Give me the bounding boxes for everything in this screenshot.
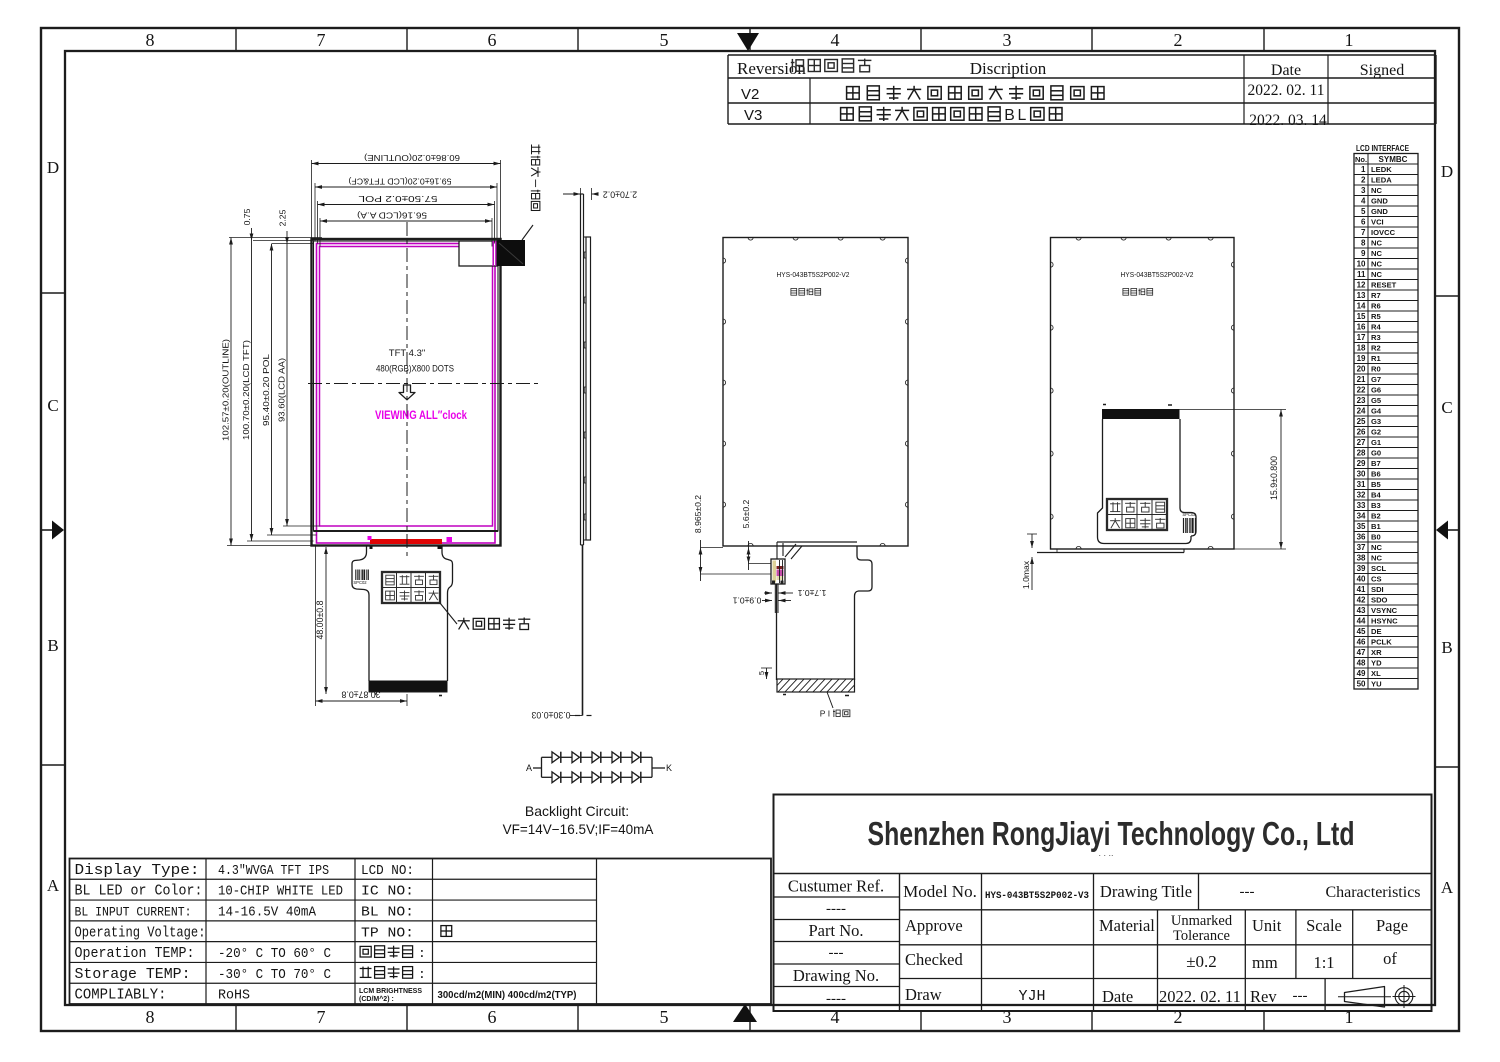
- svg-text:G6: G6: [1371, 385, 1381, 394]
- svg-text:16: 16: [1357, 322, 1366, 331]
- svg-text:NC: NC: [1371, 543, 1382, 552]
- svg-text:. . ..: . . ..: [1098, 848, 1113, 858]
- svg-text:30: 30: [1357, 469, 1366, 478]
- svg-text:of: of: [1383, 949, 1397, 968]
- svg-text:6: 6: [1361, 217, 1366, 226]
- svg-text:3: 3: [1003, 30, 1012, 50]
- svg-text:B1: B1: [1371, 522, 1381, 531]
- svg-text:NC: NC: [1371, 270, 1382, 279]
- svg-text:46: 46: [1357, 637, 1366, 646]
- svg-text:5: 5: [660, 30, 669, 50]
- svg-text:HYS-043BT5S2P002-V2: HYS-043BT5S2P002-V2: [1121, 270, 1194, 279]
- svg-text:6: 6: [488, 30, 497, 50]
- svg-text:30.87±0.8: 30.87±0.8: [341, 690, 380, 700]
- svg-text:(CD/M^2) :: (CD/M^2) :: [359, 995, 394, 1003]
- svg-text:R6: R6: [1371, 301, 1381, 310]
- svg-text:20: 20: [1357, 364, 1366, 373]
- svg-text:15.9±0.800: 15.9±0.800: [1269, 456, 1279, 500]
- svg-text:COMPLIABLY:: COMPLIABLY:: [75, 988, 167, 1004]
- svg-text:9: 9: [1361, 249, 1366, 258]
- svg-text:NC: NC: [1371, 249, 1382, 258]
- svg-text:YD: YD: [1371, 658, 1382, 667]
- svg-text:17: 17: [1357, 333, 1366, 342]
- svg-text:4.3"WVGA TFT IPS: 4.3"WVGA TFT IPS: [218, 863, 329, 879]
- svg-text:B4: B4: [1371, 490, 1381, 499]
- svg-text:14: 14: [1357, 301, 1366, 310]
- svg-text:48: 48: [1357, 658, 1366, 667]
- svg-text:C: C: [47, 396, 58, 415]
- svg-text:1.7±0.1: 1.7±0.1: [797, 588, 826, 598]
- svg-text:G2: G2: [1371, 427, 1381, 436]
- svg-text:B3: B3: [1371, 501, 1381, 510]
- svg-text:2.25: 2.25: [278, 209, 288, 226]
- svg-text:---: ---: [1240, 884, 1255, 900]
- svg-text:59.16±0.20(LCD TFT&CF): 59.16±0.20(LCD TFT&CF): [348, 177, 451, 187]
- svg-text:G7: G7: [1371, 375, 1381, 384]
- svg-text:Operating Voltage:: Operating Voltage:: [75, 925, 206, 941]
- svg-text:SDO: SDO: [1371, 595, 1388, 604]
- svg-text:1:1: 1:1: [1313, 953, 1334, 972]
- svg-text:YJH: YJH: [1018, 988, 1045, 1005]
- svg-text:XR: XR: [1371, 648, 1382, 657]
- svg-text:NC: NC: [1371, 259, 1382, 268]
- svg-text:50: 50: [1357, 679, 1366, 688]
- svg-text:2.70±0.2: 2.70±0.2: [603, 190, 637, 200]
- svg-text:SPC02: SPC02: [353, 580, 367, 585]
- svg-text:----: ----: [826, 901, 846, 917]
- svg-text:LCD NO:: LCD NO:: [361, 864, 414, 879]
- svg-text:0.30±0.03: 0.30±0.03: [531, 710, 570, 720]
- svg-text:35: 35: [1357, 522, 1366, 531]
- svg-text:Storage TEMP:: Storage TEMP:: [75, 967, 191, 983]
- svg-text:49: 49: [1357, 669, 1366, 678]
- svg-text:11: 11: [1357, 270, 1366, 279]
- svg-text:B6: B6: [1371, 469, 1381, 478]
- svg-text:Unit: Unit: [1252, 916, 1282, 935]
- svg-text:G0: G0: [1371, 448, 1381, 457]
- svg-text:L: L: [1017, 107, 1026, 124]
- svg-text:R4: R4: [1371, 322, 1381, 331]
- svg-text:8.965±0.2: 8.965±0.2: [693, 495, 703, 533]
- svg-text:0.75: 0.75: [242, 208, 252, 225]
- svg-text:28: 28: [1357, 448, 1366, 457]
- svg-text:B: B: [1441, 638, 1452, 657]
- svg-text:Part No.: Part No.: [809, 921, 864, 940]
- svg-text:CS: CS: [1371, 574, 1382, 583]
- svg-text:TP NO:: TP NO:: [361, 926, 414, 941]
- svg-text:7: 7: [317, 30, 326, 50]
- svg-text:GND: GND: [1371, 207, 1388, 216]
- svg-text:-30° C TO 70° C: -30° C TO 70° C: [218, 968, 331, 983]
- svg-text:29: 29: [1357, 459, 1366, 468]
- svg-text:D: D: [47, 158, 59, 177]
- svg-text:B2: B2: [1371, 511, 1381, 520]
- svg-text:3: 3: [1361, 186, 1366, 195]
- svg-text:P: P: [820, 708, 826, 718]
- svg-text:1: 1: [1361, 165, 1366, 174]
- svg-text:Tolerance: Tolerance: [1173, 928, 1230, 944]
- svg-text:5: 5: [660, 1007, 669, 1027]
- svg-text:VSYNC: VSYNC: [1371, 606, 1398, 615]
- svg-text:0.9±0.1: 0.9±0.1: [732, 596, 761, 606]
- svg-text:2: 2: [1361, 175, 1366, 184]
- svg-text:44: 44: [1357, 616, 1366, 625]
- svg-text:1.0max: 1.0max: [1021, 560, 1031, 589]
- svg-text:56.16(LCD A.A): 56.16(LCD A.A): [357, 211, 427, 221]
- svg-text:Operation TEMP:: Operation TEMP:: [75, 946, 195, 962]
- svg-text:95.40±0.20 POL: 95.40±0.20 POL: [261, 354, 271, 426]
- svg-text:93.60(LCD AA): 93.60(LCD AA): [277, 358, 287, 422]
- svg-text:Checked: Checked: [905, 950, 963, 969]
- svg-text:41: 41: [1357, 585, 1366, 594]
- svg-text:37: 37: [1357, 543, 1366, 552]
- svg-text:Backlight Circuit:: Backlight Circuit:: [525, 803, 629, 819]
- svg-text:B: B: [1004, 107, 1015, 124]
- svg-text:23: 23: [1357, 396, 1366, 405]
- svg-text:RESET: RESET: [1371, 280, 1397, 289]
- svg-text:-20° C TO 60° C: -20° C TO 60° C: [218, 947, 331, 962]
- svg-text:XL: XL: [1371, 669, 1381, 678]
- svg-text:7: 7: [317, 1007, 326, 1027]
- svg-text:32: 32: [1357, 490, 1366, 499]
- svg-text:V2: V2: [741, 86, 759, 103]
- svg-text:B7: B7: [1371, 459, 1381, 468]
- svg-text:±0.2: ±0.2: [1186, 952, 1217, 971]
- svg-text:A: A: [526, 763, 532, 773]
- svg-text:NC: NC: [1371, 553, 1382, 562]
- svg-text:R2: R2: [1371, 343, 1381, 352]
- svg-text:10: 10: [1357, 259, 1366, 268]
- svg-text:IOVCC: IOVCC: [1371, 228, 1396, 237]
- svg-text:C: C: [1441, 398, 1452, 417]
- svg-text:13: 13: [1357, 291, 1366, 300]
- svg-text:R1: R1: [1371, 354, 1381, 363]
- svg-text:G3: G3: [1371, 417, 1381, 426]
- svg-text:Approve: Approve: [905, 916, 963, 935]
- svg-text:Drawing Title: Drawing Title: [1100, 882, 1192, 901]
- svg-text:26: 26: [1357, 427, 1366, 436]
- svg-text:47: 47: [1357, 648, 1366, 657]
- svg-text:R7: R7: [1371, 291, 1381, 300]
- svg-text:G5: G5: [1371, 396, 1382, 405]
- svg-text:2022. 03. 14: 2022. 03. 14: [1249, 112, 1327, 129]
- svg-text:6: 6: [488, 1007, 497, 1027]
- svg-text:B5: B5: [1371, 480, 1381, 489]
- svg-text:10-CHIP WHITE LED: 10-CHIP WHITE LED: [218, 885, 343, 900]
- svg-text:4: 4: [1361, 196, 1366, 205]
- svg-text:102.57±0.20(OUTLINE): 102.57±0.20(OUTLINE): [221, 339, 231, 441]
- svg-text:Date: Date: [1271, 62, 1301, 79]
- svg-text:I: I: [828, 708, 830, 718]
- svg-text:B0: B0: [1371, 532, 1381, 541]
- svg-text:SYMBC: SYMBC: [1379, 155, 1408, 164]
- svg-text:42: 42: [1357, 595, 1366, 604]
- svg-text:G4: G4: [1371, 406, 1382, 415]
- svg-text:15: 15: [1357, 312, 1366, 321]
- svg-text:Custumer Ref.: Custumer Ref.: [788, 877, 884, 896]
- svg-text:45: 45: [1357, 627, 1366, 636]
- svg-text:25: 25: [1357, 417, 1366, 426]
- svg-text:DE: DE: [1371, 627, 1382, 636]
- svg-text:36: 36: [1357, 532, 1366, 541]
- svg-text:mm: mm: [1252, 953, 1278, 972]
- svg-text:33: 33: [1357, 501, 1366, 510]
- svg-text:V3: V3: [744, 107, 762, 124]
- svg-text:VIEWING ALL″clock: VIEWING ALL″clock: [375, 408, 467, 422]
- svg-text::: :: [418, 967, 426, 982]
- svg-text:2022. 02. 11: 2022. 02. 11: [1248, 82, 1325, 99]
- svg-text:48.00±0.8: 48.00±0.8: [315, 600, 325, 639]
- svg-text:22: 22: [1357, 385, 1366, 394]
- svg-text:Unmarked: Unmarked: [1171, 913, 1233, 929]
- svg-text:43: 43: [1357, 606, 1366, 615]
- svg-text:SCL: SCL: [1371, 564, 1387, 573]
- svg-text:A: A: [47, 876, 60, 895]
- svg-text:5: 5: [1361, 207, 1366, 216]
- svg-text:21: 21: [1357, 375, 1366, 384]
- svg-text:4: 4: [831, 30, 840, 50]
- svg-text:No.: No.: [1355, 155, 1367, 164]
- svg-text:GND: GND: [1371, 196, 1388, 205]
- svg-text:38: 38: [1357, 553, 1366, 562]
- svg-text:K: K: [666, 763, 672, 773]
- svg-text:---: ---: [1293, 988, 1308, 1004]
- svg-text:2: 2: [1174, 30, 1183, 50]
- svg-text:LCM BRIGHTNESS: LCM BRIGHTNESS: [359, 988, 422, 995]
- svg-text:TFT 4.3": TFT 4.3": [389, 348, 425, 359]
- svg-text:8: 8: [146, 30, 155, 50]
- svg-text:27: 27: [1357, 438, 1366, 447]
- svg-text:R5: R5: [1371, 312, 1381, 321]
- svg-text:24: 24: [1357, 406, 1366, 415]
- svg-text:HYS-043BT5S2P002-V3: HYS-043BT5S2P002-V3: [985, 891, 1089, 902]
- svg-text:19: 19: [1357, 354, 1366, 363]
- svg-text:18: 18: [1357, 343, 1366, 352]
- svg-text:---: ---: [829, 945, 844, 961]
- svg-text:VF=14V−16.5V;IF=40mA: VF=14V−16.5V;IF=40mA: [503, 822, 654, 837]
- svg-text:NC: NC: [1371, 186, 1382, 195]
- svg-text:480(RGB)X800 DOTS: 480(RGB)X800 DOTS: [376, 364, 454, 375]
- svg-text:YU: YU: [1371, 679, 1382, 688]
- svg-text:14-16.5V 40mA: 14-16.5V 40mA: [218, 905, 317, 920]
- svg-text:Scale: Scale: [1306, 916, 1342, 935]
- svg-text:R3: R3: [1371, 333, 1381, 342]
- svg-text:300cd/m2(MIN) 400cd/m2(TYP): 300cd/m2(MIN) 400cd/m2(TYP): [438, 989, 577, 1001]
- svg-text:SPC02: SPC02: [1182, 512, 1196, 517]
- svg-text:B: B: [47, 636, 58, 655]
- svg-text:BL INPUT CURRENT:: BL INPUT CURRENT:: [75, 905, 192, 919]
- svg-text:8: 8: [146, 1007, 155, 1027]
- svg-text:60.86±0.20(OUTLINE): 60.86±0.20(OUTLINE): [364, 153, 460, 163]
- svg-text:5.6±0.2: 5.6±0.2: [741, 499, 751, 528]
- svg-text:7: 7: [1361, 228, 1366, 237]
- svg-text:LEDA: LEDA: [1371, 175, 1392, 184]
- svg-text:R0: R0: [1371, 364, 1381, 373]
- svg-text:BL LED or Color:: BL LED or Color:: [75, 884, 203, 900]
- svg-text:8: 8: [1361, 238, 1366, 247]
- svg-text:D: D: [1441, 162, 1453, 181]
- svg-text:Draw: Draw: [905, 985, 942, 1004]
- svg-text:Drawing No.: Drawing No.: [793, 966, 879, 985]
- svg-text:Characteristics: Characteristics: [1325, 884, 1420, 901]
- svg-text:RoHS: RoHS: [218, 989, 250, 1004]
- svg-text:G1: G1: [1371, 438, 1382, 447]
- svg-text:HYS-043BT5S2P002-V2: HYS-043BT5S2P002-V2: [777, 270, 850, 279]
- svg-text:Discription: Discription: [970, 59, 1047, 78]
- svg-text:NC: NC: [1371, 238, 1382, 247]
- svg-text:SDI: SDI: [1371, 585, 1384, 594]
- svg-text:Signed: Signed: [1360, 62, 1404, 79]
- svg-text:2022. 02. 11: 2022. 02. 11: [1159, 987, 1241, 1006]
- svg-text:40: 40: [1357, 574, 1366, 583]
- svg-text:LEDK: LEDK: [1371, 165, 1392, 174]
- svg-text:Page: Page: [1376, 916, 1408, 935]
- svg-text:A: A: [1441, 878, 1454, 897]
- svg-text:57.50±0.2 POL: 57.50±0.2 POL: [358, 194, 437, 204]
- svg-text:Model No.: Model No.: [903, 882, 977, 901]
- svg-text:Material: Material: [1099, 916, 1155, 935]
- svg-text:5: 5: [757, 671, 766, 675]
- svg-text::: :: [418, 946, 426, 961]
- svg-text:PCLK: PCLK: [1371, 637, 1392, 646]
- svg-text:HSYNC: HSYNC: [1371, 616, 1398, 625]
- svg-text:----: ----: [826, 991, 846, 1007]
- svg-text:VCI: VCI: [1371, 217, 1384, 226]
- svg-text:Rev: Rev: [1250, 987, 1277, 1006]
- svg-text:1: 1: [1345, 30, 1354, 50]
- svg-text:12: 12: [1357, 280, 1366, 289]
- svg-text:Date: Date: [1102, 987, 1133, 1006]
- svg-text:34: 34: [1357, 511, 1366, 520]
- svg-text:Display Type:: Display Type:: [75, 863, 200, 879]
- svg-text:100.70±0.20(LCD TFT): 100.70±0.20(LCD TFT): [241, 340, 251, 440]
- svg-text:LCD INTERFACE: LCD INTERFACE: [1356, 143, 1409, 153]
- svg-text:31: 31: [1357, 480, 1366, 489]
- svg-text:39: 39: [1357, 564, 1366, 573]
- svg-text:IC NO:: IC NO:: [361, 885, 414, 900]
- svg-text:BL NO:: BL NO:: [361, 905, 414, 920]
